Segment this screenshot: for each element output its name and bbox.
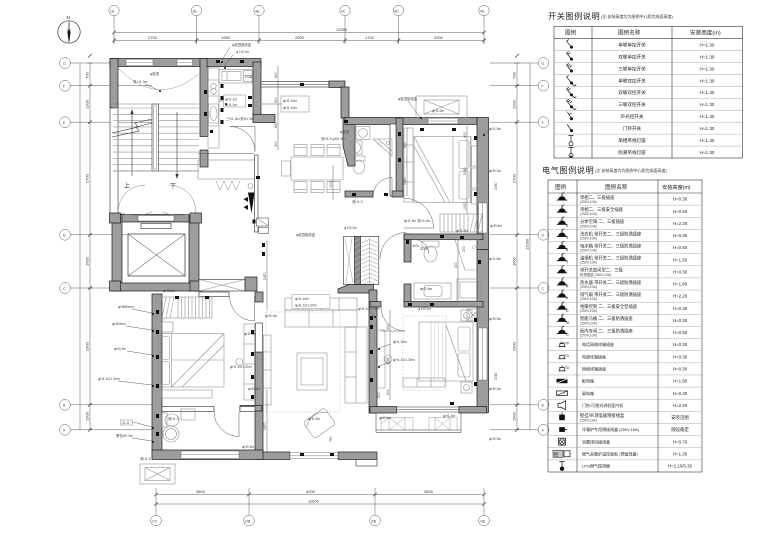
- svg-text:2700: 2700: [512, 173, 517, 183]
- svg-text:2700: 2700: [148, 35, 158, 40]
- svg-text:(250V,10A): (250V,10A): [580, 261, 597, 265]
- svg-text:φH1.1m: φH1.1m: [225, 98, 237, 102]
- svg-text:单联单控开关: 单联单控开关: [618, 41, 646, 48]
- svg-text:1020: 1020: [463, 202, 467, 210]
- svg-text:(250V,10A): (250V,10A): [580, 285, 597, 289]
- svg-text:网络终端插座: 网络终端插座: [582, 365, 606, 371]
- svg-text:1600: 1600: [85, 256, 90, 266]
- svg-text:4B: 4B: [255, 9, 260, 13]
- svg-text:(250V,16A): (250V,16A): [580, 418, 597, 422]
- svg-text:H=1.10/0.30: H=1.10/0.30: [668, 464, 693, 469]
- svg-text:2080: 2080: [494, 372, 498, 380]
- svg-text:1500: 1500: [85, 411, 90, 421]
- svg-text:φH2.2m: φH2.2m: [163, 289, 175, 293]
- svg-text:300: 300: [386, 324, 390, 330]
- svg-text:φ H2.2m: φ H2.2m: [418, 307, 431, 311]
- svg-text:φH0.3m: φH0.3m: [490, 224, 502, 228]
- svg-text:φ吸顶接线盒: φ吸顶接线盒: [296, 232, 316, 237]
- svg-text:ZL-6: ZL-6: [122, 421, 129, 425]
- svg-text:φH1.10/1.30m: φH1.10/1.30m: [295, 304, 317, 308]
- svg-text:2080: 2080: [463, 167, 467, 175]
- svg-text:2900: 2900: [85, 341, 90, 351]
- svg-text:双联单控开关: 双联单控开关: [618, 53, 646, 60]
- svg-text:双 H1.3m: 双 H1.3m: [133, 80, 147, 84]
- svg-text:F: F: [63, 85, 65, 89]
- svg-text:安装高度(m): 安装高度(m): [662, 183, 691, 191]
- svg-text:双联双控开关: 双联双控开关: [618, 89, 646, 96]
- svg-text:700: 700: [85, 72, 90, 79]
- svg-text:4/B: 4/B: [480, 519, 486, 523]
- svg-text:冷凝炉专用预接线盒 (250V,16A): 冷凝炉专用预接线盒 (250V,16A): [582, 426, 640, 432]
- svg-text:声光控开关: 声光控开关: [621, 113, 644, 120]
- svg-text:φH2.2m: φH2.2m: [456, 229, 468, 233]
- svg-text:φH650mm: φH650mm: [118, 305, 134, 309]
- svg-text:G: G: [566, 333, 569, 337]
- svg-text:H=2.20: H=2.20: [673, 403, 688, 408]
- svg-text:φH1.3m: φH1.3m: [489, 127, 501, 131]
- svg-text:(250V,10A): (250V,10A): [580, 321, 597, 325]
- svg-text:(250V,10A): (250V,10A): [580, 297, 597, 301]
- svg-text:12050: 12050: [336, 27, 348, 32]
- svg-text:11600: 11600: [308, 499, 320, 504]
- svg-text:三联单控开关: 三联单控开关: [618, 65, 646, 72]
- svg-text:H=0.50: H=0.50: [673, 330, 688, 335]
- svg-text:H=1.30: H=1.30: [700, 114, 715, 119]
- svg-text:2/B: 2/B: [245, 519, 251, 523]
- svg-text:电气图例说明: 电气图例说明: [542, 165, 594, 175]
- svg-text:(注:安装高度均为图例中心距完成面高度): (注:安装高度均为图例中心距完成面高度): [595, 167, 667, 173]
- svg-text:2080: 2080: [494, 182, 498, 190]
- svg-text:图例名称: 图例名称: [605, 183, 628, 191]
- svg-text:φ吸顶: φ吸顶: [150, 72, 160, 76]
- svg-text:H=0.70: H=0.70: [673, 439, 688, 444]
- svg-text:双H1.3 φH0.3m: 双H1.3 φH0.3m: [321, 137, 345, 141]
- svg-text:三H1.3m/双H1.3m: 三H1.3m/双H1.3m: [226, 117, 254, 121]
- svg-text:φH0.3m: φH0.3m: [308, 417, 320, 421]
- svg-text:4200: 4200: [306, 489, 316, 494]
- svg-text:H=1.30: H=1.30: [700, 78, 715, 83]
- svg-text:双H1.3: 双H1.3: [140, 457, 151, 461]
- svg-text:300: 300: [454, 262, 458, 268]
- svg-text:1200: 1200: [85, 99, 90, 109]
- svg-text:φH1.10/1.30m: φH1.10/1.30m: [230, 365, 252, 369]
- svg-text:2900: 2900: [512, 341, 517, 351]
- svg-text:790: 790: [329, 436, 333, 442]
- svg-text:(250V,10A): (250V,10A): [580, 212, 597, 216]
- svg-text:弱电箱: 弱电箱: [582, 390, 594, 396]
- svg-text:H=1.30: H=1.30: [673, 451, 688, 456]
- svg-text:防溅插座 (250V,10A): 防溅插座 (250V,10A): [580, 272, 611, 277]
- svg-text:TO: TO: [565, 366, 570, 370]
- svg-text:(250V,10A): (250V,10A): [580, 200, 597, 204]
- svg-text:2900: 2900: [434, 35, 444, 40]
- svg-text:2900: 2900: [295, 35, 305, 40]
- svg-text:1/C: 1/C: [152, 519, 158, 523]
- svg-text:φH40mm: φH40mm: [112, 322, 126, 326]
- svg-text:φH1.5m: φH1.5m: [420, 287, 432, 291]
- svg-text:3600: 3600: [424, 489, 434, 494]
- svg-text:(250V,10A): (250V,10A): [580, 249, 597, 253]
- svg-text:φ H2.2m: φ H2.2m: [344, 226, 357, 230]
- svg-text:4C: 4C: [341, 9, 346, 13]
- svg-text:H=1.30: H=1.30: [700, 42, 715, 47]
- svg-text:300: 300: [274, 141, 278, 147]
- svg-text:φH0.3m: φH0.3m: [489, 437, 501, 441]
- svg-text:图例名称: 图例名称: [618, 29, 641, 37]
- svg-text:黑色H0.3m: 黑色H0.3m: [116, 433, 133, 438]
- svg-text:2A: 2A: [110, 9, 115, 13]
- svg-text:图例: 图例: [555, 183, 567, 191]
- svg-text:φ H2.2m: φ H2.2m: [236, 50, 249, 54]
- svg-text:H=1.30: H=1.30: [700, 138, 715, 143]
- svg-text:(250V,10A): (250V,10A): [580, 309, 597, 313]
- svg-text:LPG燃气探测器: LPG燃气探测器: [582, 463, 610, 469]
- svg-text:H=0.30: H=0.30: [673, 269, 688, 274]
- svg-text:T00: T00: [245, 74, 253, 79]
- svg-text:400: 400: [463, 132, 467, 138]
- svg-text:H=1.30: H=1.30: [700, 102, 715, 107]
- svg-text:门铃/可视对讲机室内机: 门铃/可视对讲机室内机: [582, 402, 623, 408]
- svg-text:电视终端插座: 电视终端插座: [582, 353, 606, 359]
- svg-text:H=0.50: H=0.50: [673, 245, 688, 250]
- svg-text:门铃开关: 门铃开关: [623, 125, 642, 132]
- svg-text:H=0.30: H=0.30: [673, 391, 688, 396]
- svg-text:900: 900: [274, 97, 278, 103]
- svg-text:3/B: 3/B: [371, 519, 377, 523]
- svg-text:单联双控开关: 单联双控开关: [618, 77, 646, 84]
- svg-text:H=2.20: H=2.20: [673, 294, 688, 299]
- svg-text:配电箱: 配电箱: [582, 378, 594, 384]
- svg-text:1200: 1200: [512, 99, 517, 109]
- svg-text:300L: 300L: [412, 244, 420, 248]
- svg-text:H=0.30: H=0.30: [673, 197, 688, 202]
- svg-text:2470: 2470: [263, 422, 267, 430]
- svg-text:500: 500: [377, 392, 381, 398]
- svg-text:下: 下: [170, 183, 176, 190]
- svg-text:φH0.3m: φH0.3m: [242, 445, 254, 449]
- svg-text:H=1.30: H=1.30: [700, 90, 715, 95]
- svg-text:控: 控: [554, 451, 559, 458]
- svg-text:1255: 1255: [386, 357, 390, 365]
- svg-text:850: 850: [274, 122, 278, 128]
- svg-text:3800: 3800: [196, 489, 206, 494]
- svg-text:φH1.10m: φH1.10m: [393, 340, 407, 344]
- svg-text:φH1.10/1.30m: φH1.10/1.30m: [393, 358, 415, 362]
- svg-text:φH1.10/1.30m: φH1.10/1.30m: [98, 377, 120, 381]
- svg-text:(250V,10A): (250V,10A): [580, 224, 597, 228]
- svg-text:φ吸顶接线盒: φ吸顶接线盒: [398, 96, 418, 101]
- svg-text:φH0.3m: φH0.3m: [244, 332, 256, 336]
- svg-text:2700: 2700: [85, 173, 90, 183]
- svg-text:单相吊线灯座: 单相吊线灯座: [618, 137, 646, 144]
- svg-text:H=1.30: H=1.30: [700, 150, 715, 155]
- svg-text:φH1.10/1.30m: φH1.10/1.30m: [358, 307, 380, 311]
- svg-text:H=1.80: H=1.80: [673, 379, 688, 384]
- svg-text:N: N: [67, 15, 70, 20]
- svg-text:900: 900: [403, 142, 407, 148]
- svg-text:φH0.3m: φH0.3m: [265, 314, 277, 318]
- svg-text:φH0.3m: φH0.3m: [489, 387, 501, 391]
- svg-text:H=0.30: H=0.30: [673, 318, 688, 323]
- svg-text:G: G: [542, 62, 545, 66]
- svg-text:G: G: [63, 62, 66, 66]
- svg-text:2B: 2B: [193, 9, 198, 13]
- svg-text:φH1.3m: φH1.3m: [443, 414, 455, 418]
- svg-text:200: 200: [462, 246, 466, 252]
- svg-text:φH0.3m: φH0.3m: [489, 169, 501, 173]
- svg-text:随设备定: 随设备定: [671, 426, 689, 433]
- svg-text:φH1.10m: φH1.10m: [283, 106, 297, 110]
- svg-text:φH0.3m: φH0.3m: [489, 317, 501, 321]
- svg-text:12030: 12030: [525, 238, 530, 250]
- svg-text:φH0.3m: φH0.3m: [114, 347, 126, 351]
- svg-text:H=1.50: H=1.50: [673, 257, 688, 262]
- svg-text:上: 上: [124, 182, 130, 190]
- svg-text:φH1.5m: φH1.5m: [489, 257, 501, 261]
- svg-text:电话网络终端插座: 电话网络终端插座: [582, 341, 614, 347]
- svg-text:安装见图: 安装见图: [671, 414, 689, 421]
- svg-text:浴霸排风接线盒: 浴霸排风接线盒: [582, 438, 610, 444]
- svg-text:H=1.30: H=1.30: [700, 66, 715, 71]
- svg-text:1500: 1500: [512, 411, 517, 421]
- svg-text:H=2.20: H=2.20: [673, 221, 688, 226]
- svg-text:(250V,10A): (250V,10A): [580, 334, 597, 338]
- svg-text:H=0.30: H=0.30: [673, 366, 688, 371]
- svg-text:500: 500: [386, 389, 390, 395]
- svg-text:φH0.3m: φH0.3m: [432, 109, 444, 113]
- svg-text:H=0.50: H=0.50: [673, 209, 688, 214]
- svg-text:4D: 4D: [395, 9, 400, 13]
- svg-text:φ吸顶: φ吸顶: [340, 130, 350, 134]
- svg-text:1950: 1950: [221, 35, 231, 40]
- svg-text:图例: 图例: [565, 29, 577, 37]
- svg-text:1920: 1920: [403, 177, 407, 185]
- svg-text:H=1.80: H=1.80: [673, 282, 688, 287]
- svg-text:φ吸顶接线盒: φ吸顶接线盒: [232, 42, 252, 47]
- svg-text:H=0.30: H=0.30: [673, 342, 688, 347]
- svg-text:三联双控开关: 三联双控开关: [618, 101, 646, 108]
- svg-text:H=0.30: H=0.30: [673, 354, 688, 359]
- svg-text:φH1.3m 双H1.3m: φH1.3m 双H1.3m: [404, 219, 431, 223]
- svg-text:H=0.30: H=0.30: [673, 233, 688, 238]
- svg-text:600: 600: [274, 72, 278, 78]
- svg-text:1600: 1600: [512, 256, 517, 266]
- svg-text:双H1.3: 双H1.3: [168, 417, 179, 421]
- svg-text:开关图例说明: 开关图例说明: [548, 11, 600, 21]
- svg-text:H=0.30: H=0.30: [673, 306, 688, 311]
- svg-text:φH1.10m: φH1.10m: [283, 99, 297, 103]
- svg-text:φH0.3m: φH0.3m: [248, 387, 260, 391]
- svg-text:M: M: [566, 321, 569, 325]
- svg-text:φH0.4m: φH0.4m: [379, 416, 391, 420]
- svg-text:F: F: [542, 85, 544, 89]
- svg-text:双H1.3: 双H1.3: [352, 200, 363, 204]
- svg-text:4A: 4A: [480, 9, 485, 13]
- svg-text:φH1.10m: φH1.10m: [295, 297, 309, 301]
- svg-text:安装高度(m): 安装高度(m): [690, 29, 721, 37]
- svg-text:TP: TP: [565, 342, 569, 346]
- svg-text:1100: 1100: [329, 181, 333, 188]
- svg-text:(注:安装高度均为图例中心距完成面高度): (注:安装高度均为图例中心距完成面高度): [601, 13, 673, 19]
- svg-text:1700: 1700: [365, 35, 375, 40]
- svg-text:燃气采暖炉温控面板 (预留线盒): 燃气采暖炉温控面板 (预留线盒): [582, 450, 638, 456]
- svg-text:700: 700: [512, 72, 517, 79]
- svg-text:防潮吊线灯座: 防潮吊线灯座: [618, 149, 646, 156]
- svg-text:(250V,10A): (250V,10A): [580, 236, 597, 240]
- svg-text:H=1.30: H=1.30: [700, 54, 715, 59]
- svg-text:2470: 2470: [263, 272, 267, 280]
- svg-text:H=1.30: H=1.30: [700, 126, 715, 131]
